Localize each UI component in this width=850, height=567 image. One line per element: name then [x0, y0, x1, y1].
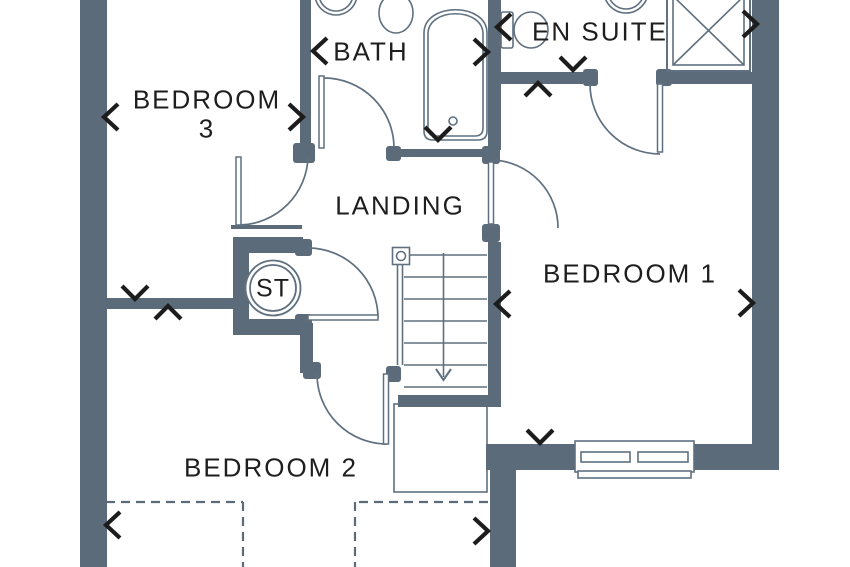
bathtub-icon — [424, 10, 487, 140]
bedroom3-door-leaf — [236, 157, 241, 225]
room-label-ensuite: EN SUITE — [532, 18, 668, 47]
arrow-left-icon — [106, 512, 120, 538]
door-arc-icon — [590, 84, 660, 154]
exterior-wall-right — [752, 0, 779, 470]
toilet-icon — [379, 0, 413, 33]
ensuite-south-wall-left — [501, 72, 583, 84]
door-arc-icon — [240, 157, 308, 225]
stairs-east-wall — [488, 242, 501, 407]
door-arc-icon — [308, 248, 378, 318]
bedroom1-door-leaf — [489, 162, 494, 224]
arrow-down-icon — [425, 127, 451, 140]
ensuite-south-wall-right — [672, 72, 752, 84]
room-label-bedroom3-number: 3 — [199, 115, 215, 144]
ensuite-door-leaf — [658, 84, 663, 152]
room-label-bedroom3: BEDROOM — [133, 86, 281, 115]
room-label-landing: LANDING — [335, 192, 465, 221]
floor-plan-drawing — [0, 0, 850, 567]
bath-door-leaf — [319, 76, 324, 148]
door-arc-icon — [493, 160, 558, 228]
storage-south-wall — [233, 319, 303, 335]
dashed-head-height-outline — [106, 502, 488, 567]
storage-door-leaf — [308, 315, 378, 320]
arrow-right-icon — [474, 518, 488, 544]
room-label-bath: BATH — [333, 38, 408, 67]
arrow-left-icon — [313, 38, 327, 64]
exterior-wall-left — [80, 0, 107, 567]
bath-west-wall — [300, 0, 311, 150]
lower-vertical-wall — [490, 458, 516, 567]
newel-post-icon — [393, 248, 410, 265]
arrow-right-icon — [739, 290, 753, 316]
door-arc-icon — [324, 78, 394, 148]
arrow-down-icon — [560, 57, 586, 70]
room-label-storage: ST — [256, 275, 290, 303]
room-label-bedroom1: BEDROOM 1 — [543, 260, 717, 289]
bath-south-wall — [400, 149, 488, 157]
arrow-right-icon — [474, 39, 488, 65]
arrow-up-icon — [525, 83, 551, 96]
door-arc-icon — [317, 374, 387, 444]
arrow-down-icon — [527, 430, 553, 443]
staircase-icon — [393, 248, 488, 388]
stairs-bottom-wall — [398, 395, 501, 407]
window-icon — [575, 441, 694, 478]
arrow-down-icon — [122, 286, 148, 299]
floor-plan: BEDROOM 3 BATH EN SUITE LANDING BEDROOM … — [0, 0, 850, 567]
bath-fixtures — [315, 0, 487, 140]
room-label-bedroom2: BEDROOM 2 — [184, 454, 358, 483]
shower-icon — [667, 0, 750, 71]
bedroom2-door-leaf — [384, 374, 389, 444]
under-stairs-void — [394, 404, 487, 492]
sink-icon — [604, 0, 648, 13]
